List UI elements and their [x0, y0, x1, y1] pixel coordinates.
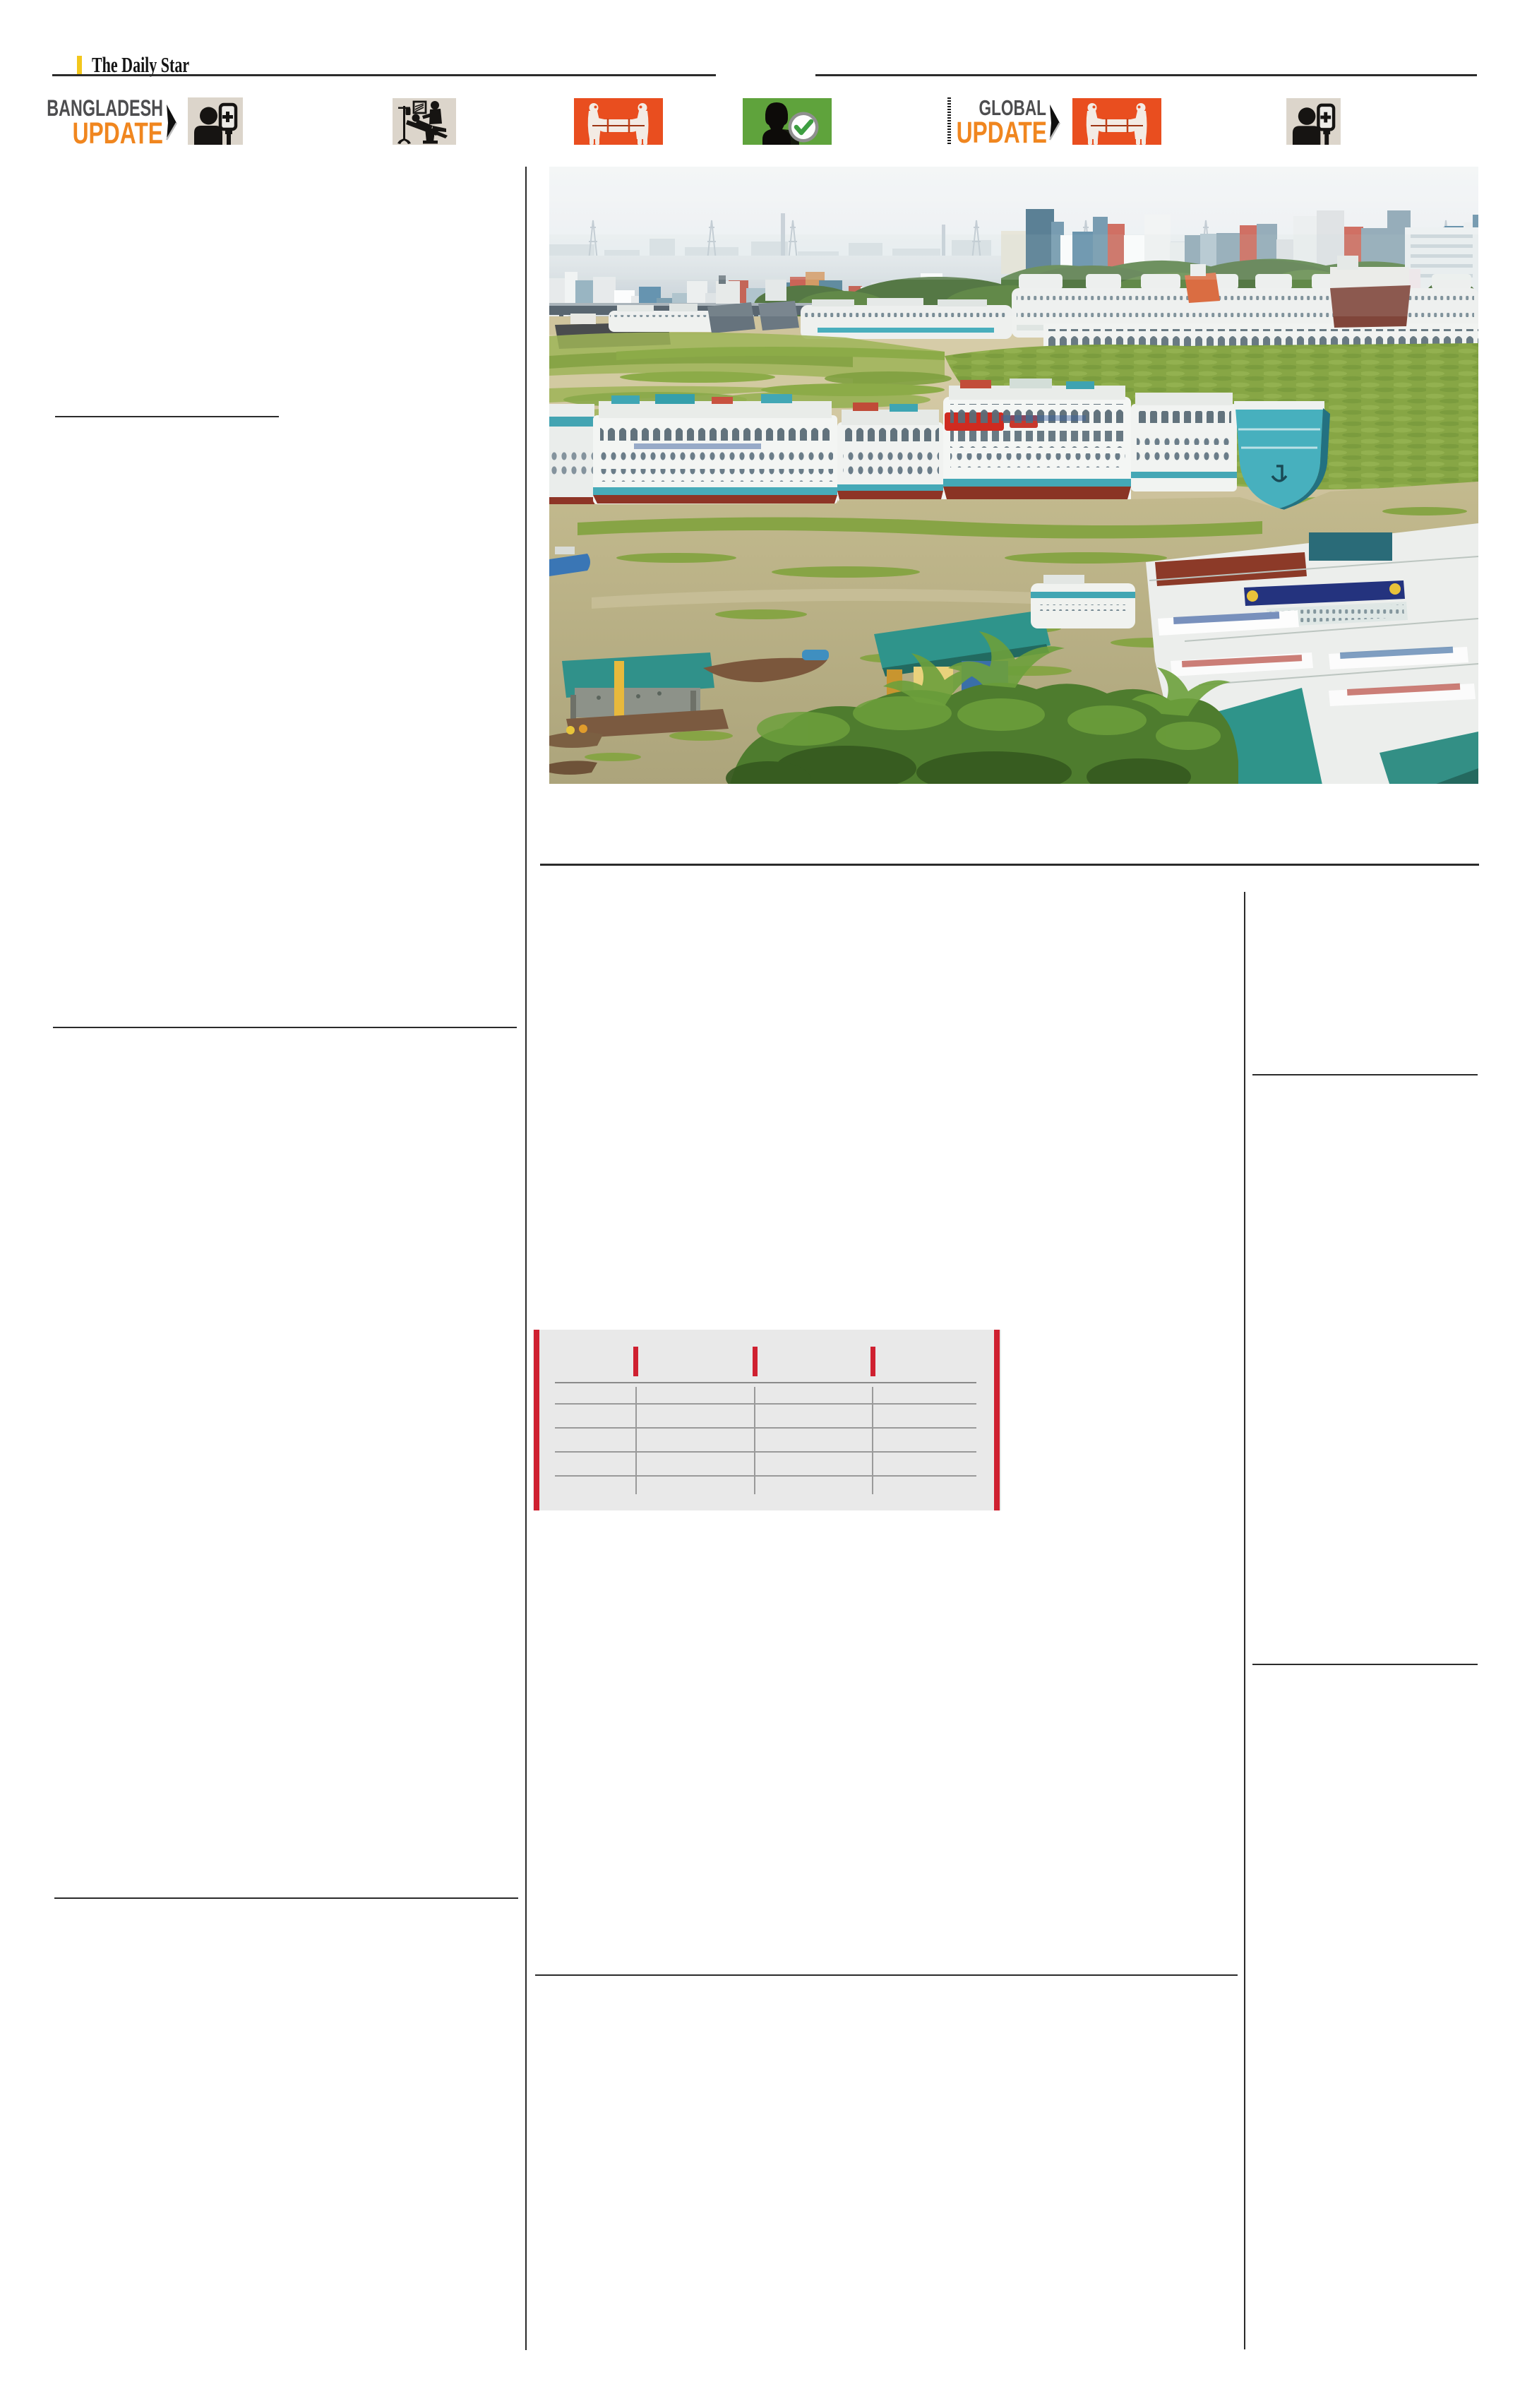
- svg-text:The Daily Star: The Daily Star: [92, 52, 189, 77]
- svg-text:UPDATE: UPDATE: [73, 117, 163, 148]
- svg-text:UPDATE: UPDATE: [957, 116, 1047, 148]
